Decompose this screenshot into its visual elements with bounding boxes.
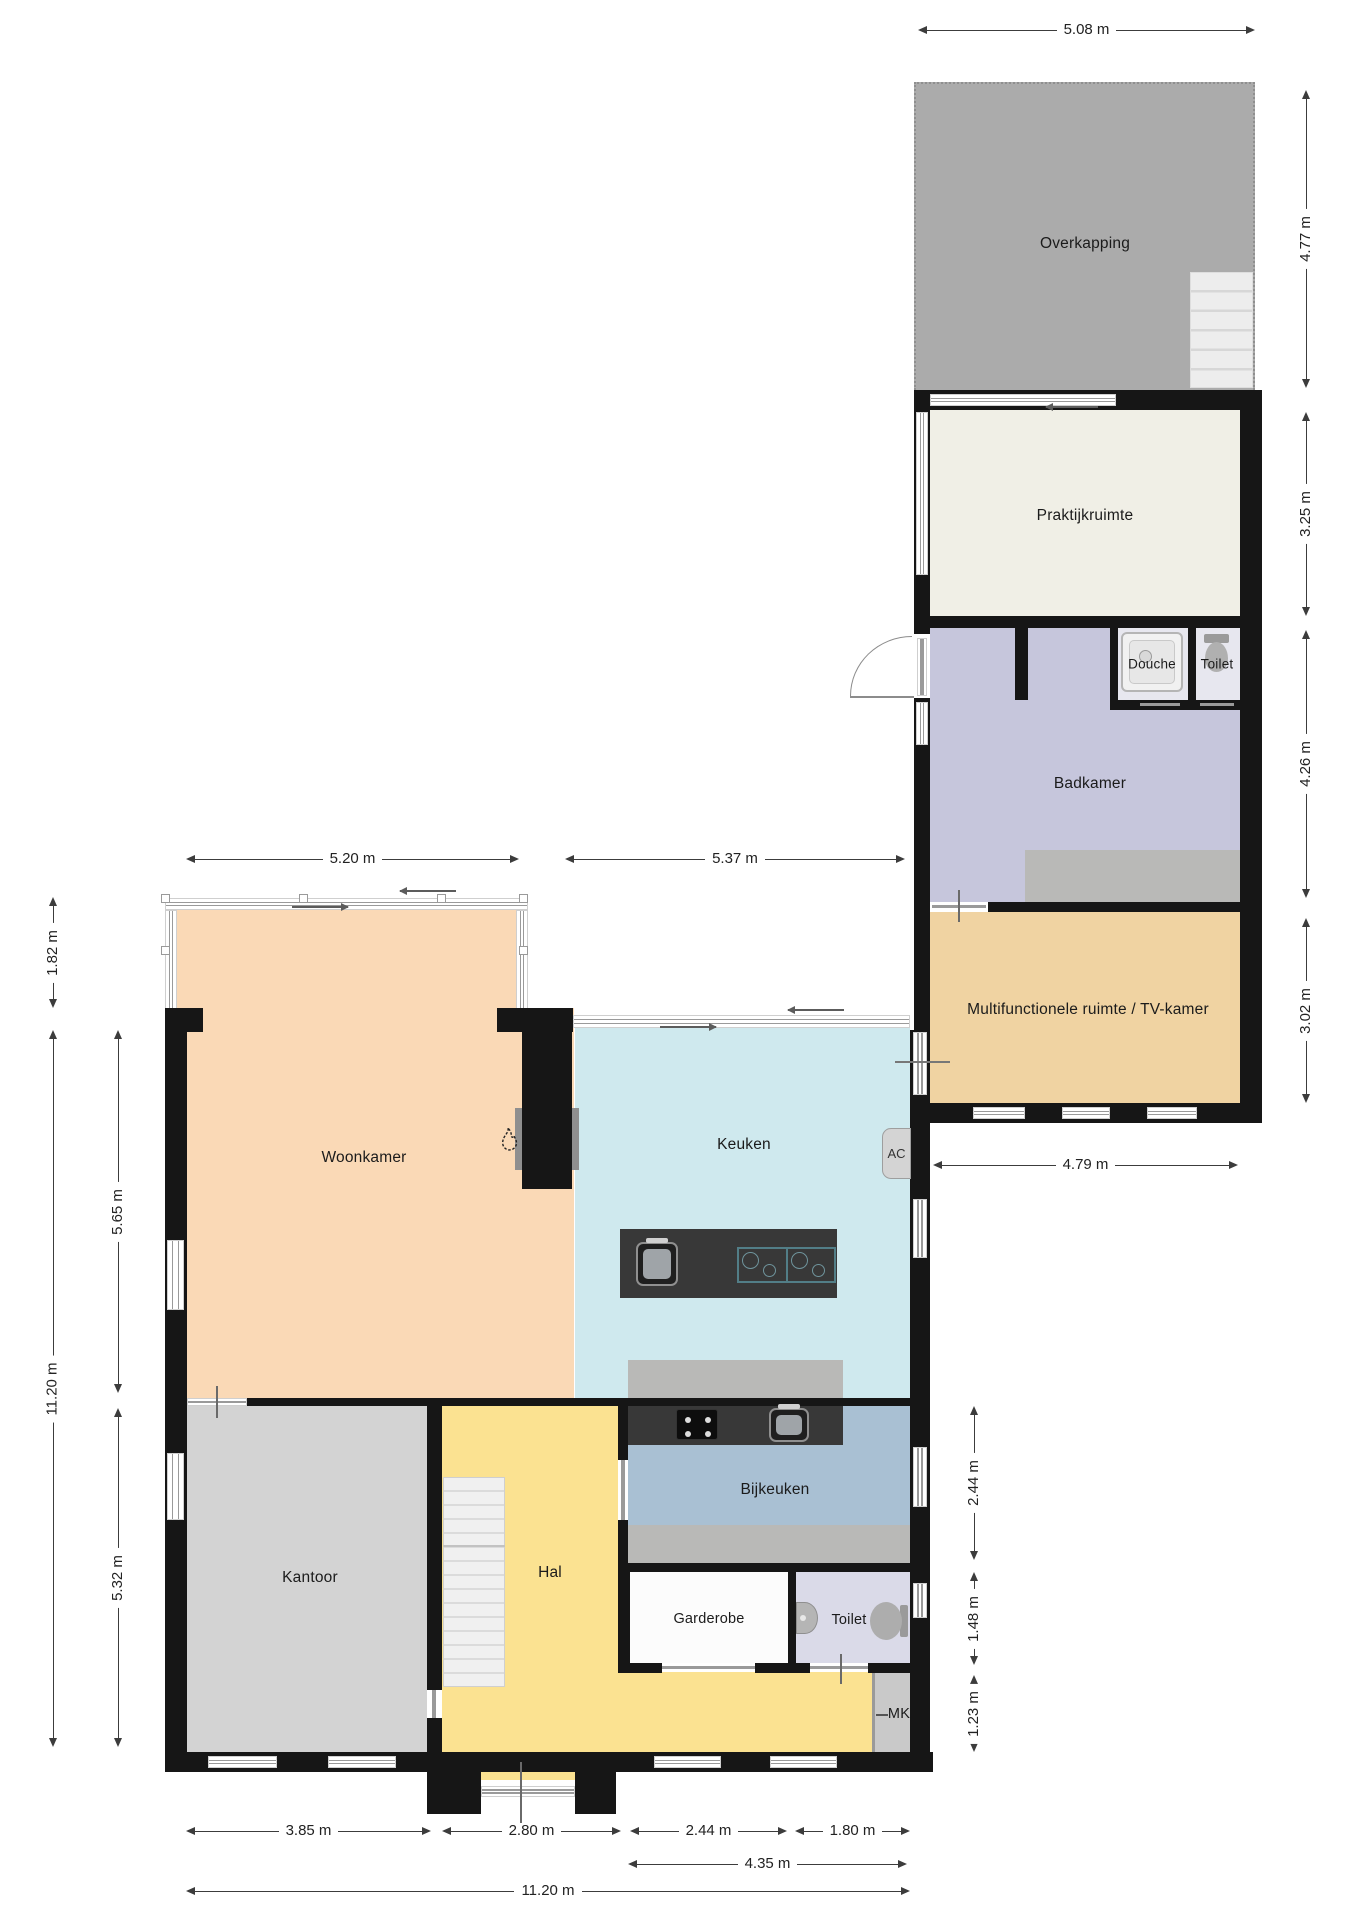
dimension-woonkamer-width: 5.20 m xyxy=(186,851,519,867)
window-multifunctionele-2 xyxy=(1062,1107,1110,1119)
slide-direction-arrow-icon xyxy=(400,890,456,892)
wall-segment xyxy=(575,1772,616,1814)
wall-segment xyxy=(427,1398,442,1690)
door-leaf xyxy=(850,696,914,698)
wall-segment xyxy=(755,1663,810,1673)
slide-direction-arrow-icon xyxy=(660,1026,716,1028)
dimension-toilet-depth: 1.48 m xyxy=(966,1572,982,1665)
window-post xyxy=(519,946,528,955)
wall-segment xyxy=(988,902,1240,912)
wall-segment xyxy=(427,1718,442,1754)
window-post xyxy=(161,946,170,955)
window-post xyxy=(437,894,446,903)
room-label-kantoor: Kantoor xyxy=(282,1569,338,1587)
room-label-garderobe: Garderobe xyxy=(673,1611,744,1627)
dimension-garderobe-width: 2.44 m xyxy=(630,1823,787,1839)
window-badkamer-left xyxy=(916,702,928,745)
door-sill-kantoor xyxy=(432,1690,436,1718)
dimension-praktijkruimte-depth: 3.25 m xyxy=(1298,412,1314,616)
room-label-toilet-boven: Toilet xyxy=(1201,657,1234,672)
front-door xyxy=(481,1786,575,1797)
window-kantoor-bottom-2 xyxy=(328,1756,396,1768)
sink-icon xyxy=(636,1242,678,1286)
wall-segment xyxy=(910,1030,930,1752)
door-sill-douche xyxy=(1140,703,1180,706)
bijkeuken-counter-gray xyxy=(628,1525,910,1563)
dimension-kantoor-depth: 5.32 m xyxy=(110,1408,126,1747)
dimension-bijkeuken-depth: 2.44 m xyxy=(966,1406,982,1560)
wall-segment xyxy=(618,1398,628,1460)
dimension-multifunctionele-depth: 3.02 m xyxy=(1298,918,1314,1103)
room-label-douche: Douche xyxy=(1128,657,1176,672)
wall-segment xyxy=(788,1572,796,1663)
dimension-badkamer-depth: 4.26 m xyxy=(1298,630,1314,898)
fireplace-glass-right xyxy=(572,1108,579,1170)
wall-segment xyxy=(247,1398,910,1406)
wall-segment xyxy=(1188,628,1196,704)
window-kantoor-bottom-1 xyxy=(208,1756,277,1768)
window-serre-left xyxy=(165,910,177,1010)
window-toilet-right xyxy=(913,1583,927,1618)
sink-icon xyxy=(769,1408,809,1442)
window-praktijkruimte-top xyxy=(930,394,1116,406)
door-swing-arc xyxy=(850,636,912,696)
mk-partition-line xyxy=(872,1673,875,1752)
slide-direction-arrow-icon xyxy=(1046,406,1098,408)
window-multifunctionele-1 xyxy=(973,1107,1025,1119)
room-label-overkapping: Overkapping xyxy=(1040,235,1130,253)
room-label-badkamer: Badkamer xyxy=(1054,775,1126,793)
window-keuken-right-1 xyxy=(913,1032,927,1095)
dimension-woonkamer-depth: 5.65 m xyxy=(110,1030,126,1393)
keuken-counter xyxy=(628,1360,843,1398)
reference-tick xyxy=(840,1654,842,1684)
door-sill-toilet-boven xyxy=(1200,703,1234,706)
gas-hob-icon xyxy=(676,1409,718,1440)
dimension-house-depth: 11.20 m xyxy=(45,1030,61,1747)
door-sill-toilet xyxy=(810,1666,868,1669)
dimension-kantoor-width: 3.85 m xyxy=(186,1823,431,1839)
window-keuken-top xyxy=(573,1015,910,1028)
window-hal-bottom-2 xyxy=(770,1756,837,1768)
window-keuken-right-2 xyxy=(913,1199,927,1258)
floor-plan-canvas: Overkapping 5.08 m Praktijkruimte Douche… xyxy=(0,0,1358,1920)
staircase xyxy=(443,1477,505,1687)
room-label-woonkamer: Woonkamer xyxy=(321,1149,406,1167)
ac-unit: AC xyxy=(882,1128,911,1179)
reference-tick xyxy=(216,1386,218,1418)
window-post xyxy=(299,894,308,903)
wall-segment xyxy=(497,1008,573,1032)
door-frame-wing-entry xyxy=(917,638,927,696)
slide-direction-arrow-icon xyxy=(292,906,348,908)
slide-direction-arrow-icon xyxy=(788,1009,844,1011)
window-post xyxy=(161,894,170,903)
cooktop-icon xyxy=(737,1247,836,1283)
reference-tick xyxy=(958,890,960,922)
dimension-keuken-width: 5.37 m xyxy=(565,851,905,867)
room-label-hal: Hal xyxy=(538,1564,562,1582)
wall-segment xyxy=(165,1008,203,1032)
dimension-mk-depth: 1.23 m xyxy=(966,1675,982,1752)
mk-leader-line xyxy=(876,1714,888,1716)
wall-segment xyxy=(930,616,1240,628)
room-keuken xyxy=(575,1028,910,1400)
window-woonkamer-left xyxy=(167,1240,184,1310)
room-hal-lower xyxy=(442,1672,878,1752)
room-label-mk: MK xyxy=(888,1706,910,1722)
bijkeuken-counter-dark xyxy=(628,1404,843,1445)
wall-segment xyxy=(618,1663,662,1673)
wall-segment xyxy=(618,1563,910,1572)
window-multifunctionele-3 xyxy=(1147,1107,1197,1119)
room-label-bijkeuken: Bijkeuken xyxy=(740,1481,809,1499)
wall-segment xyxy=(914,698,930,1032)
room-label-praktijkruimte: Praktijkruimte xyxy=(1037,507,1134,525)
dimension-overkapping-depth: 4.77 m xyxy=(1298,90,1314,388)
dimension-house-width: 11.20 m xyxy=(186,1883,910,1899)
dimension-right-section-width: 4.35 m xyxy=(628,1856,907,1872)
door-sill-bijkeuken xyxy=(621,1460,625,1520)
room-label-multifunctionele: Multifunctionele ruimte / TV-kamer xyxy=(967,1001,1209,1019)
dimension-serre-depth: 1.82 m xyxy=(45,897,61,1008)
wall-segment xyxy=(165,1030,187,1754)
door-sill-garderobe xyxy=(662,1666,755,1669)
wall-segment xyxy=(868,1663,910,1673)
window-post xyxy=(519,894,528,903)
dimension-hal-width: 2.80 m xyxy=(442,1823,621,1839)
window-praktijkruimte-left xyxy=(916,412,928,575)
room-label-toilet-begane-grond: Toilet xyxy=(831,1612,866,1628)
room-woonkamer xyxy=(187,1008,574,1400)
room-label-keuken: Keuken xyxy=(717,1136,771,1154)
badkamer-counter xyxy=(1025,850,1240,902)
stair-landing-line xyxy=(443,1545,505,1547)
ac-label: AC xyxy=(887,1146,905,1161)
wall-segment xyxy=(427,1772,481,1814)
fireplace-wall xyxy=(522,1031,572,1189)
dimension-wing-width: 4.79 m xyxy=(933,1157,1238,1173)
window-bijkeuken-right xyxy=(913,1447,927,1507)
flame-icon xyxy=(494,1126,522,1160)
wall-segment xyxy=(1240,390,1262,1123)
wall-segment xyxy=(1015,628,1028,700)
dimension-overkapping-width: 5.08 m xyxy=(918,22,1255,38)
reference-line xyxy=(895,1061,950,1063)
window-hal-bottom-1 xyxy=(654,1756,721,1768)
dimension-toilet-width: 1.80 m xyxy=(795,1823,910,1839)
wall-segment xyxy=(618,1572,630,1663)
overkapping-steps-icon xyxy=(1190,272,1253,388)
window-serre-right xyxy=(516,910,528,1010)
wall-segment xyxy=(1110,628,1118,700)
room-woonkamer-serre xyxy=(177,910,516,1010)
toilet-icon xyxy=(870,1602,908,1640)
window-kantoor-left xyxy=(167,1453,184,1520)
